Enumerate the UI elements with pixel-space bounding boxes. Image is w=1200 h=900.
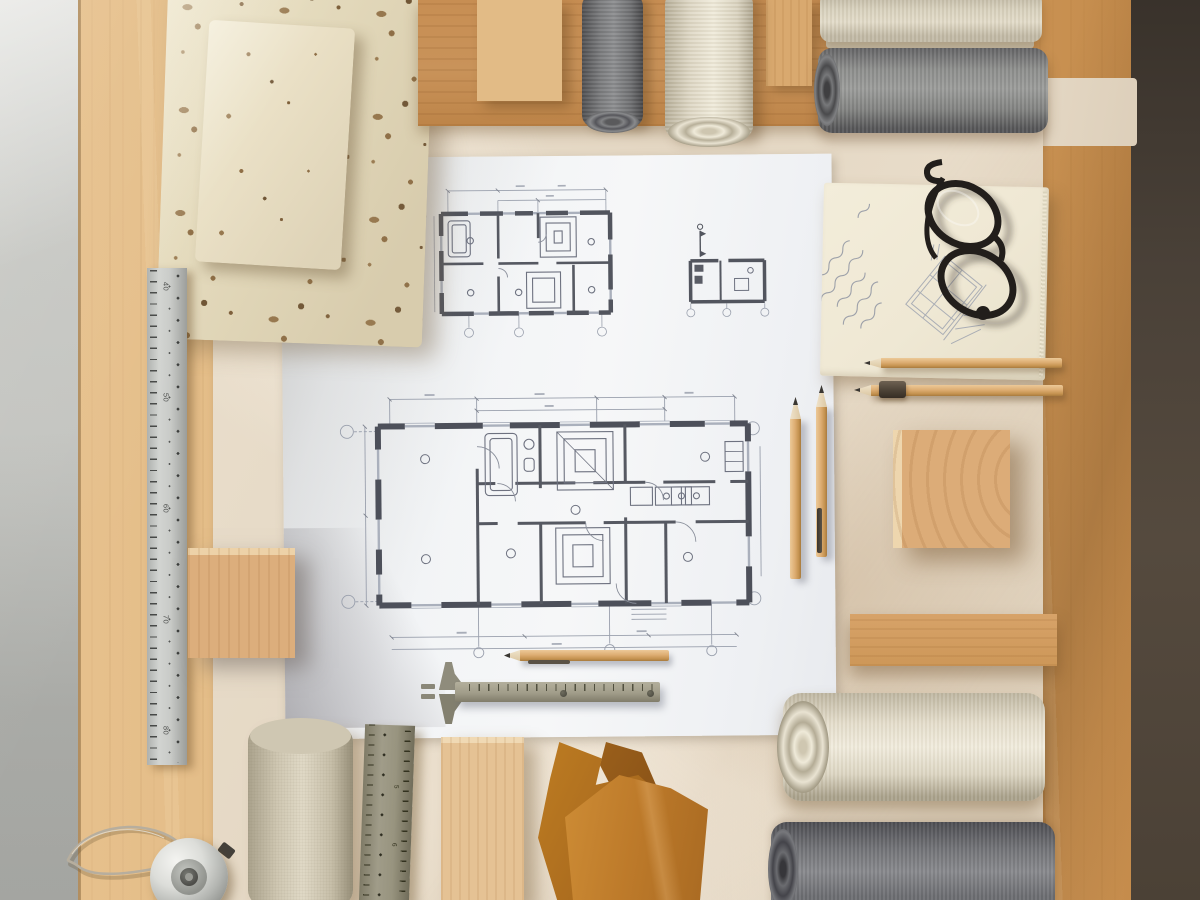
main-plan-fixtures — [485, 430, 745, 620]
ruler-number: 5 — [392, 780, 399, 794]
ruler-number: 70 — [162, 611, 171, 629]
ruler-number: 80 — [162, 722, 171, 740]
wood-sample-plank-top — [766, 0, 812, 86]
ruler-tick-marks — [150, 270, 157, 763]
vernier-caliper — [425, 664, 665, 722]
ruler-tick-marks — [363, 724, 375, 900]
caliper-screw — [560, 690, 567, 697]
main-plan-dimension-lines — [340, 391, 762, 659]
beige-fabric-roll-topright — [820, 0, 1042, 42]
floor-plan-upper — [428, 178, 779, 346]
pencil-clip-detail — [817, 508, 822, 553]
ruler-number: 50 — [162, 389, 171, 407]
flatlay-photo: 40 50 60 70 80 5 6 — [0, 0, 1200, 900]
ruler-number: 40 — [162, 278, 171, 296]
caliper-prong — [421, 694, 435, 699]
concrete-light-patch — [0, 0, 82, 330]
ruler-tick-marks — [399, 731, 411, 900]
ruler-number: 6 — [390, 838, 397, 852]
oak-plank-right — [850, 614, 1057, 666]
pencil-horizontal-1 — [880, 358, 1062, 368]
wood-plank-bottom — [441, 737, 524, 900]
caliper-bar — [455, 682, 660, 702]
oak-cube-left — [188, 548, 295, 658]
pencil-vertical-1 — [790, 418, 801, 579]
floor-plan-main — [334, 386, 766, 670]
dark-background-edge — [1131, 0, 1200, 900]
upper-plan-annex — [690, 224, 765, 302]
ruler-number: 60 — [162, 500, 171, 518]
caliper-screw — [647, 690, 654, 697]
beige-fabric-roll-bottomleft — [248, 726, 353, 900]
glasses — [880, 150, 1080, 370]
travertine-slab-upper — [195, 20, 356, 270]
ruler-dot-marks-minor — [168, 285, 171, 763]
caliper-prong — [421, 684, 435, 689]
wood-sample-block-top — [477, 0, 562, 101]
concrete-floor — [0, 0, 82, 900]
main-plan-door-arcs — [477, 445, 696, 605]
ruler-dot-marks — [377, 733, 387, 900]
gray-fabric-roll-top — [582, 0, 643, 127]
table-edge-seam — [78, 0, 81, 900]
oak-cube-right — [893, 430, 1010, 548]
gray-fabric-roll-topright — [818, 48, 1048, 133]
ruler-dot-marks — [176, 274, 180, 763]
pencil-metal-clip — [879, 381, 906, 398]
glasses-frame — [916, 162, 1025, 329]
cream-fabric-roll-right — [783, 693, 1045, 801]
cream-fabric-roll-top — [665, 0, 753, 138]
tape-measure-hub-center — [185, 873, 193, 881]
gray-fabric-roll-bottom — [771, 822, 1055, 900]
small-ruler-bottom: 5 6 — [359, 724, 415, 900]
steel-ruler: 40 50 60 70 80 — [147, 268, 187, 765]
